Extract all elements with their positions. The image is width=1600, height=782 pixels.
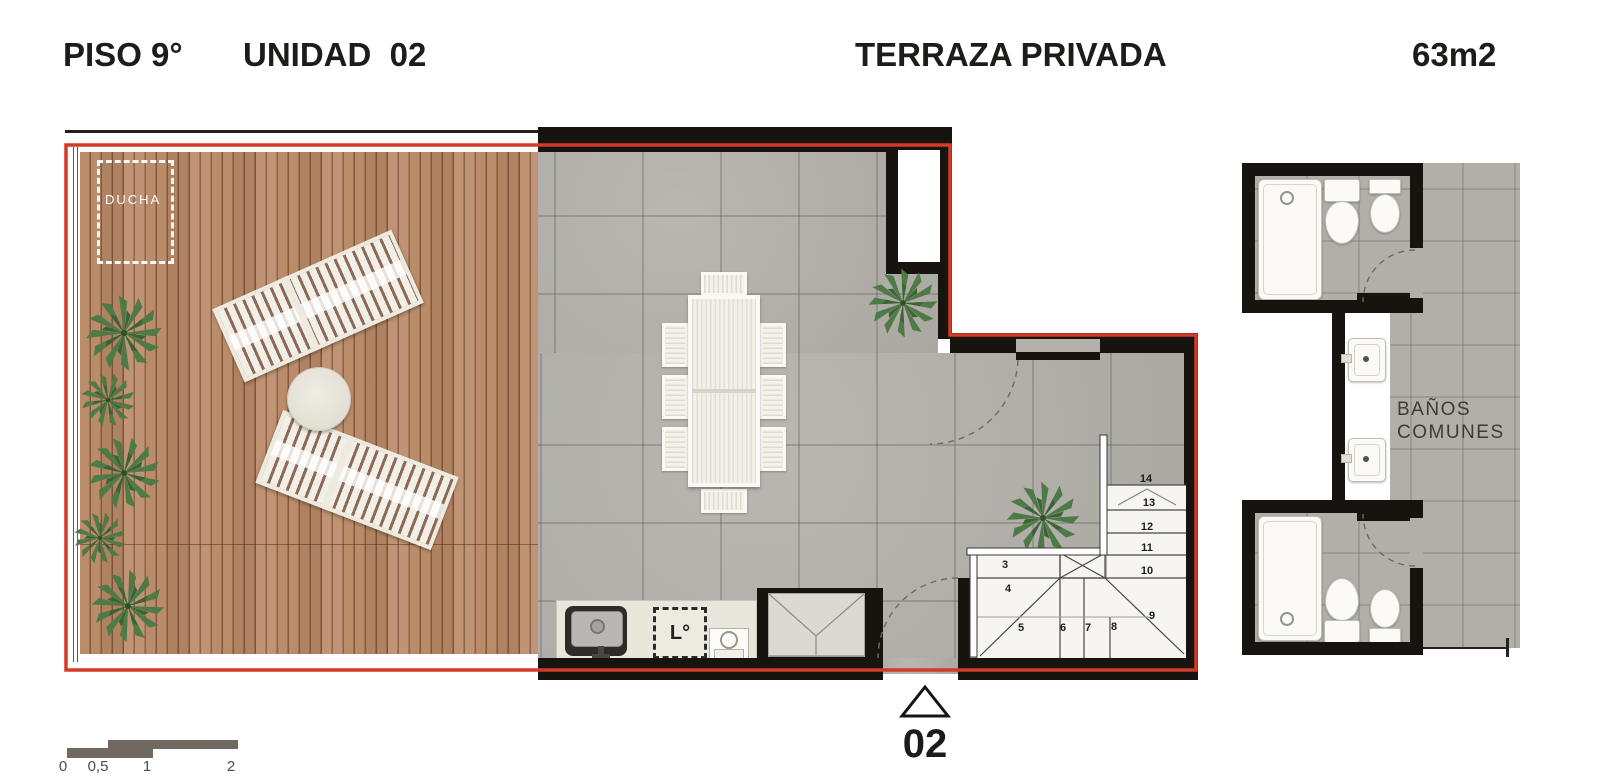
scale-label: 1	[143, 758, 151, 775]
floor-plan-page: PISO 9° UNIDAD 02 TERRAZA PRIVADA 63m2 D…	[0, 0, 1600, 782]
stair-step-number: 6	[1060, 622, 1066, 634]
staircase	[967, 435, 1186, 658]
plant-icon	[86, 295, 162, 371]
scale-label: 0	[59, 758, 67, 775]
stair-step-number: 4	[1005, 583, 1011, 595]
plant-icon	[73, 422, 174, 523]
stair-step-number: 3	[1002, 559, 1008, 571]
stair-step-number: 10	[1141, 565, 1153, 577]
stair-step-number: 9	[1149, 610, 1155, 622]
plant-icon	[70, 508, 130, 568]
stair-step-number: 7	[1085, 622, 1091, 634]
door-swing-arc	[878, 578, 958, 658]
unit-marker-icon	[902, 687, 948, 716]
door-swing-arc	[930, 360, 1018, 444]
door-swing-arc	[1363, 514, 1415, 566]
duct-hopper-lines	[769, 594, 864, 656]
unit-number-label: 02	[903, 722, 948, 767]
stair-step-number: 11	[1141, 542, 1153, 554]
stair-step-number: 12	[1141, 521, 1153, 533]
door-swing-arc	[1363, 250, 1415, 302]
scale-label: 2	[227, 758, 235, 775]
plant-icon	[86, 564, 169, 647]
scale-bar	[67, 740, 238, 758]
stair-step-number: 13	[1143, 497, 1155, 509]
scale-label: 0,5	[88, 758, 109, 775]
common-bathrooms-label: BAÑOS COMUNES	[1397, 398, 1505, 444]
stair-step-number: 8	[1111, 621, 1117, 633]
stair-step-number: 14	[1140, 473, 1152, 485]
plan-annotations	[0, 0, 1600, 782]
plant-icon	[73, 365, 142, 434]
stair-step-number: 5	[1018, 622, 1024, 634]
plant-icon	[855, 255, 950, 350]
